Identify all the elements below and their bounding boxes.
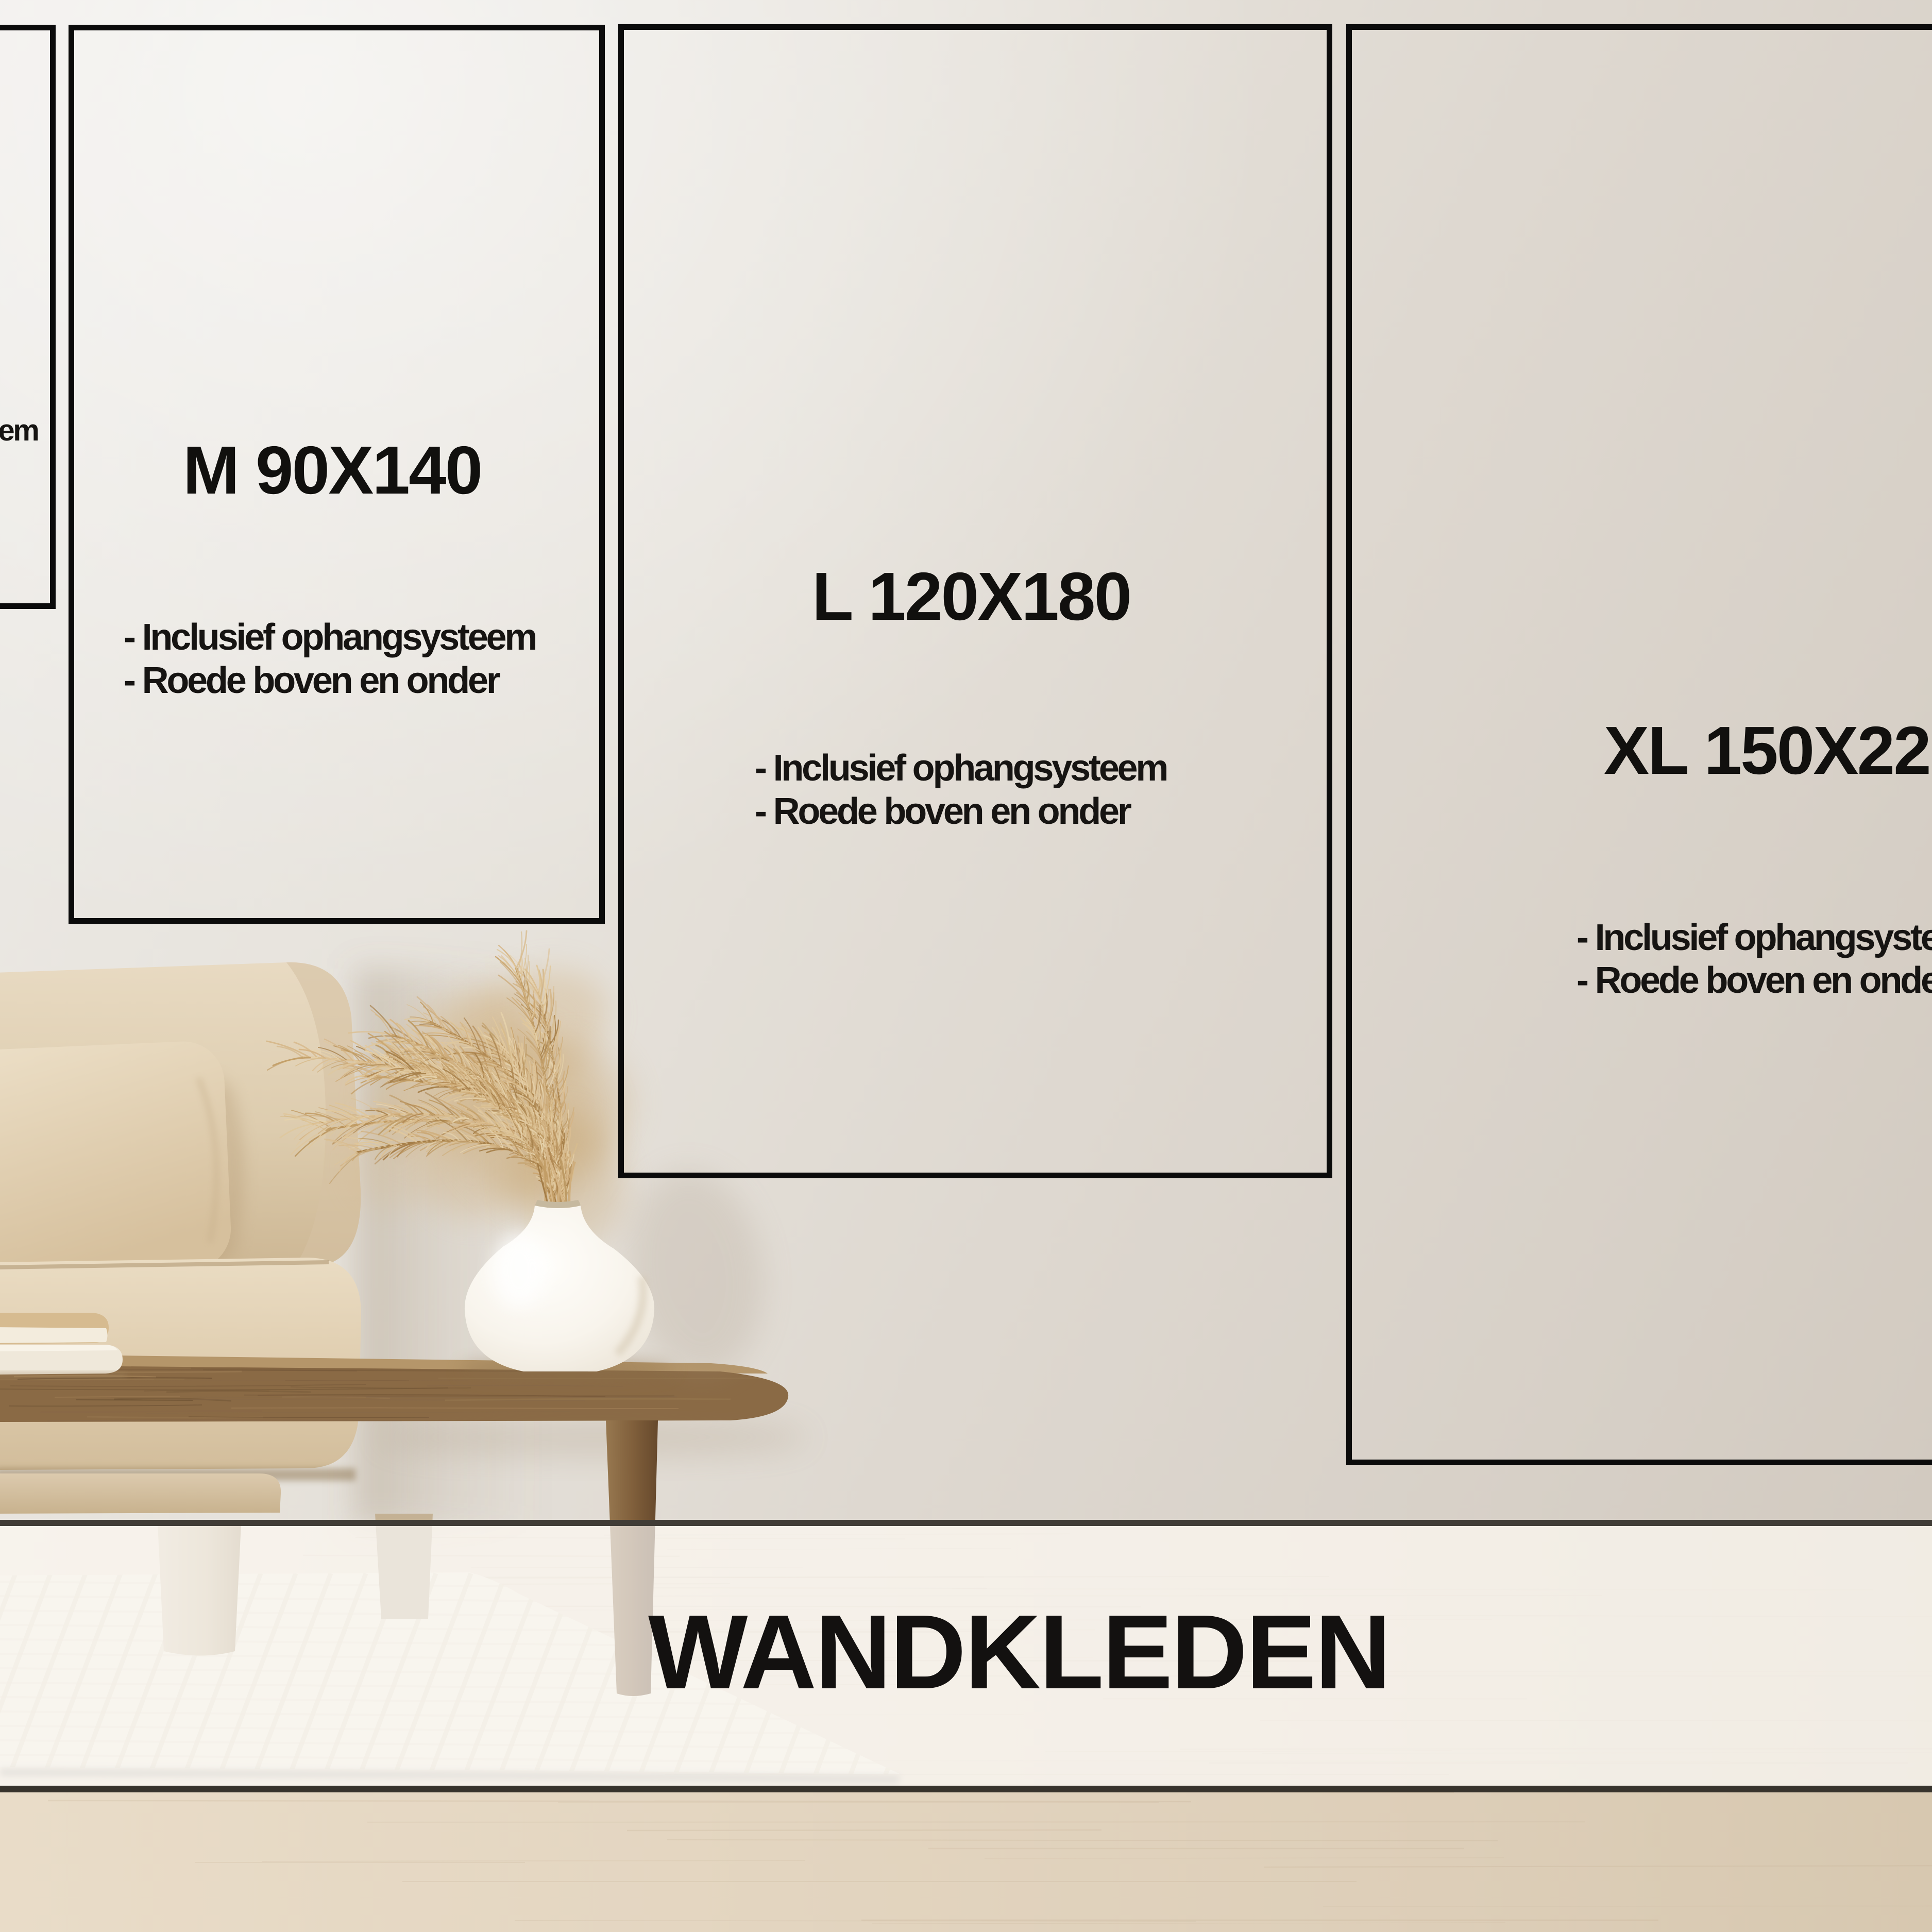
svg-text:WANDKLEDEN: WANDKLEDEN [648,1593,1389,1711]
svg-text:- Inclusief ophangsysteem: - Inclusief ophangsysteem [1577,917,1932,958]
svg-text:- Roede boven en onder: - Roede boven en onder [755,791,1131,832]
svg-text:- Inclusief ophangsysteem: - Inclusief ophangsysteem [124,617,535,658]
svg-text:XL 150X220: XL 150X220 [1604,713,1932,788]
svg-text:L 120X180: L 120X180 [812,558,1130,634]
svg-text:- Roede boven en onder: - Roede boven en onder [1577,960,1932,1001]
svg-text:- Inclusief ophangsysteem: - Inclusief ophangsysteem [755,748,1166,789]
svg-text:M 90X140: M 90X140 [183,432,481,508]
svg-text:- Roede boven en onder: - Roede boven en onder [124,660,500,701]
